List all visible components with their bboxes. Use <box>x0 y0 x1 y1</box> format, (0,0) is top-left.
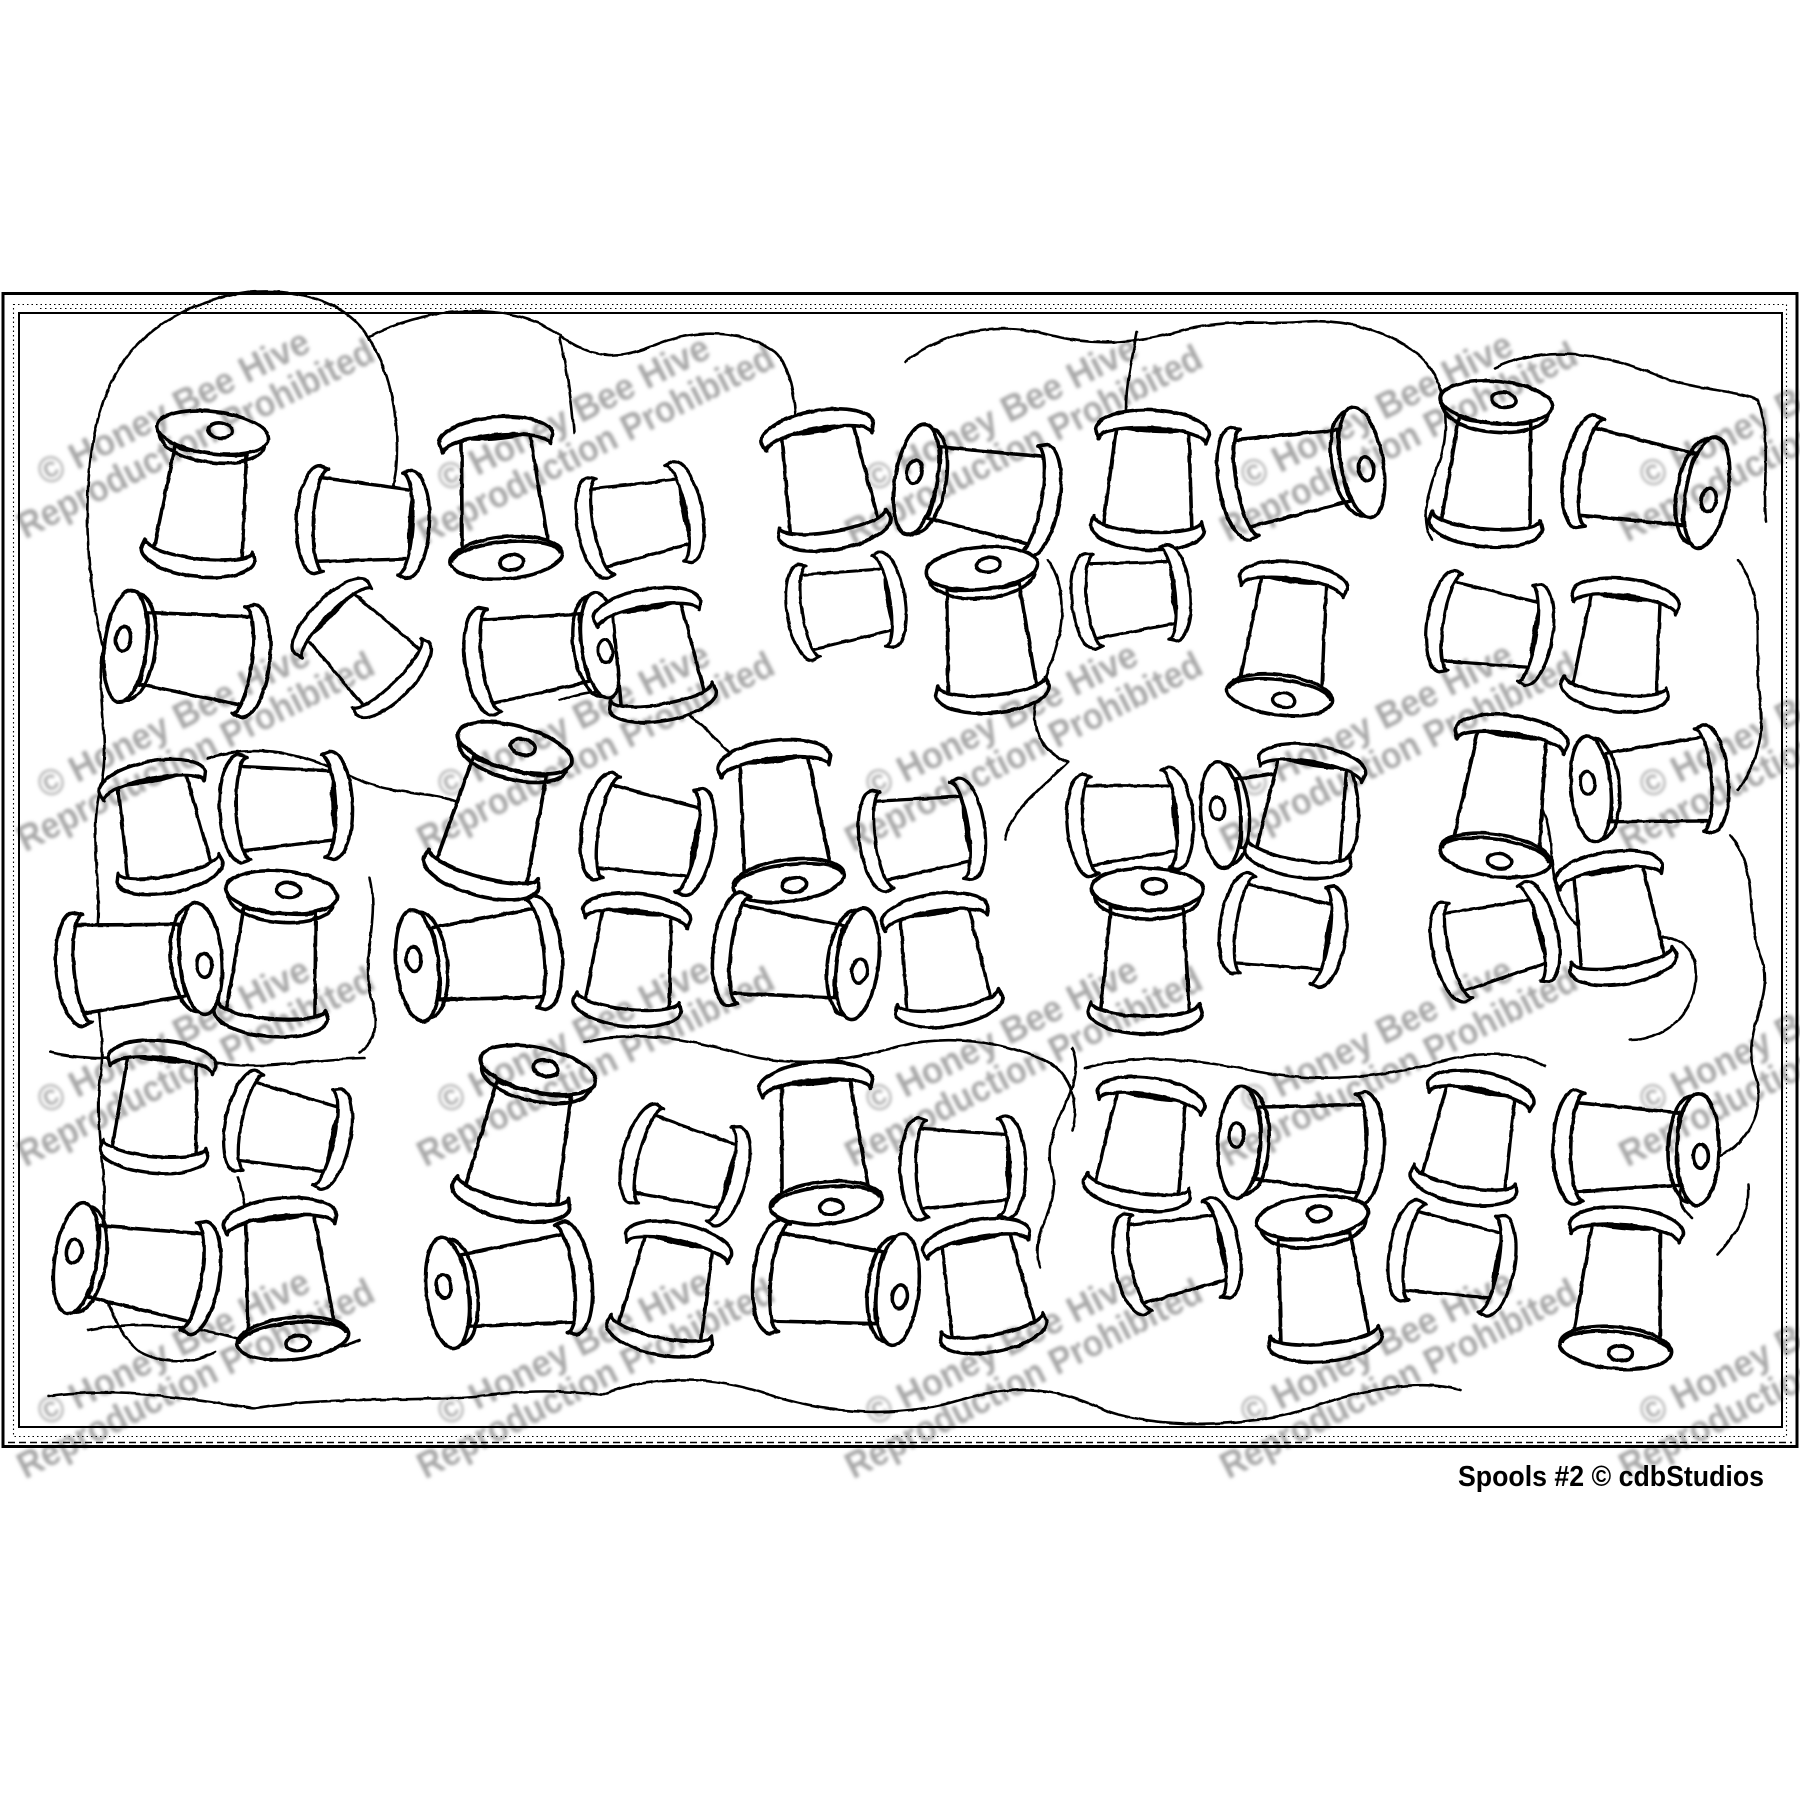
svg-text:Spools #2 © cdbStudios: Spools #2 © cdbStudios <box>1458 1461 1764 1493</box>
